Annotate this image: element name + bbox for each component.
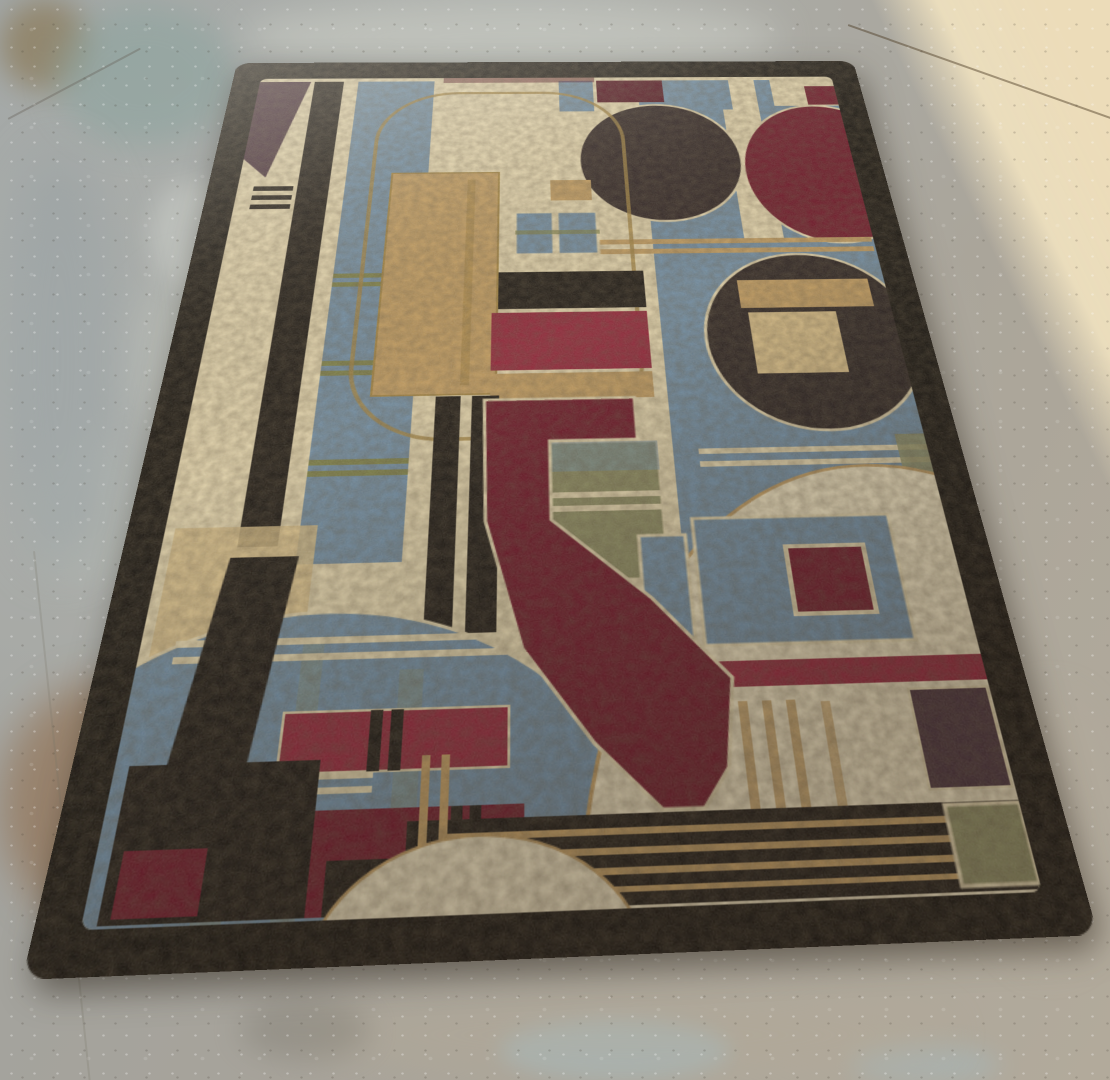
rug-texture-group xyxy=(22,61,1098,980)
rug-artwork xyxy=(22,61,1098,980)
area-rug xyxy=(22,61,1098,980)
photo-scene xyxy=(0,0,1110,1080)
rug-position-layer xyxy=(0,0,1110,1080)
rug-sheen xyxy=(22,61,1098,980)
